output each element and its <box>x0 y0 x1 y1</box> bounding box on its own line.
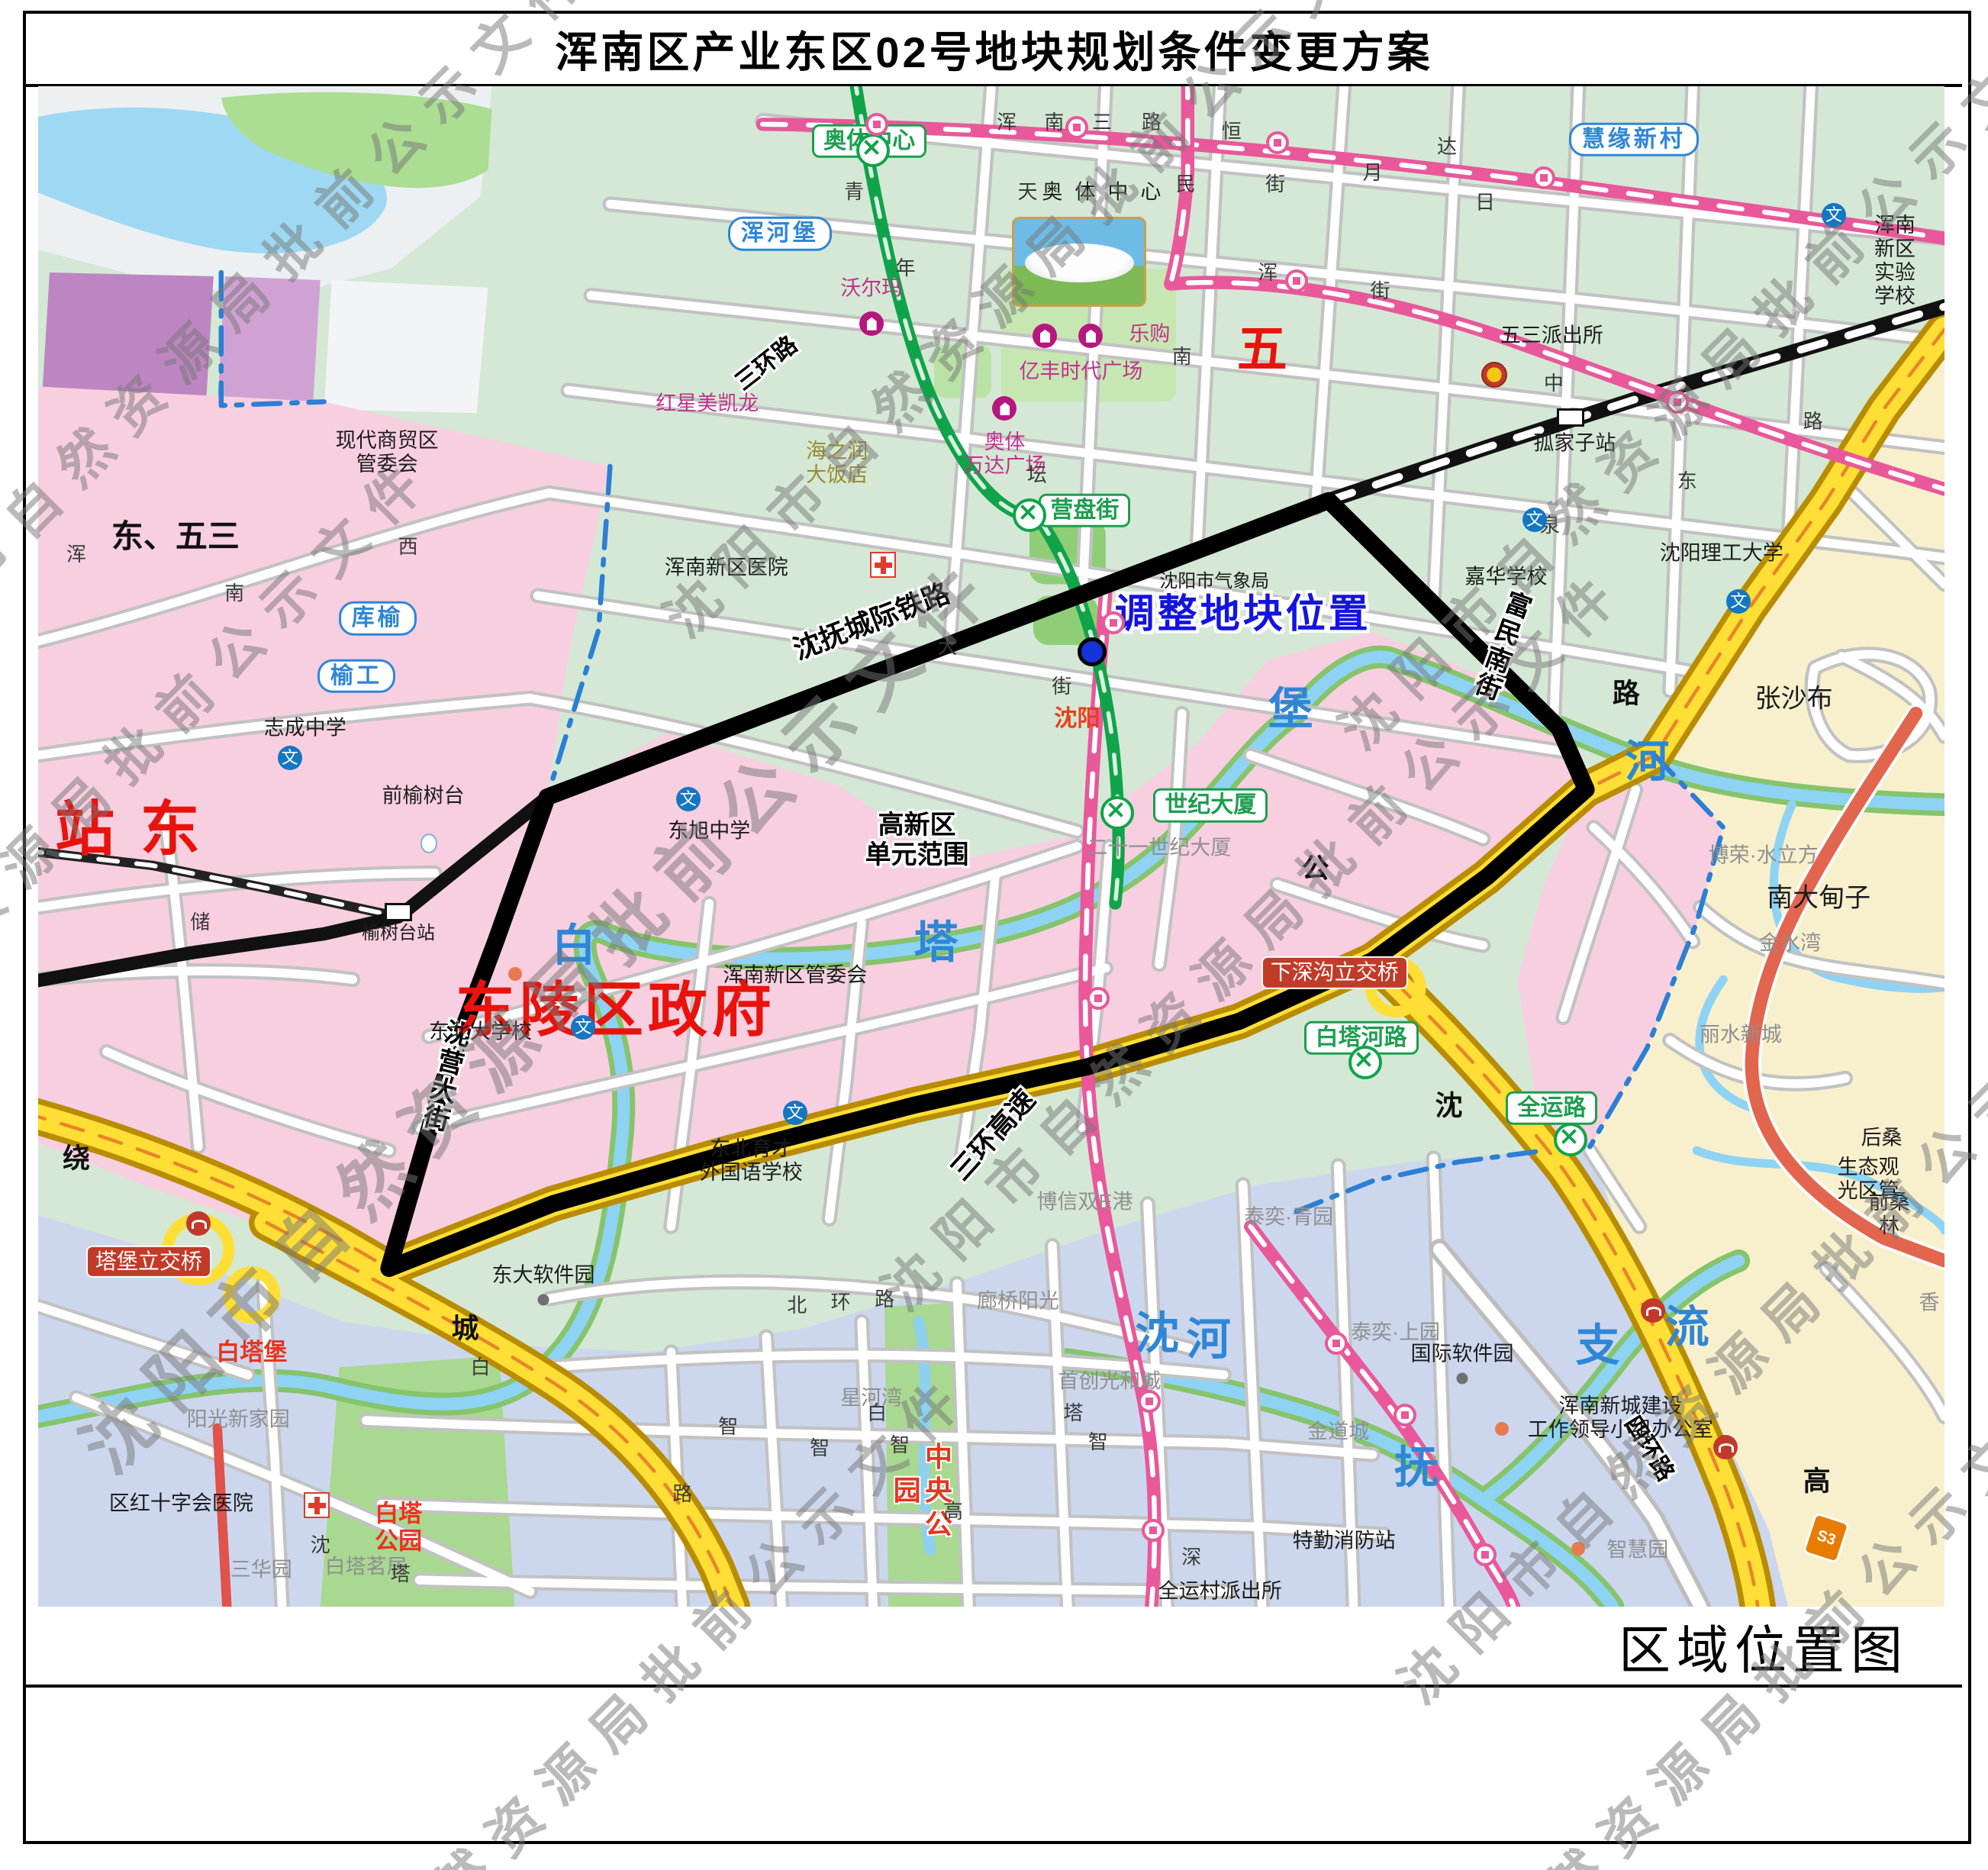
stadium-photo <box>1012 217 1146 307</box>
planning-map-page: 浑南区产业东区02号地块规划条件变更方案 奥体中心 <box>0 0 1988 1870</box>
page-title: 浑南区产业东区02号地块规划条件变更方案 <box>555 18 1432 80</box>
map-base-svg <box>38 86 1945 1607</box>
block-purple <box>42 272 214 405</box>
map-canvas: 奥体中心浑河堡慧缘新村营盘街世纪大厦白塔河路全运路库榆榆工下深沟立交桥塔堡立交桥… <box>38 86 1945 1607</box>
block-white <box>324 280 488 413</box>
corner-bar: 区域位置图 <box>26 1607 1962 1688</box>
title-bar: 浑南区产业东区02号地块规划条件变更方案 <box>26 14 1962 87</box>
map-type-label: 区域位置图 <box>1619 1608 1909 1684</box>
block-purple <box>217 276 321 409</box>
